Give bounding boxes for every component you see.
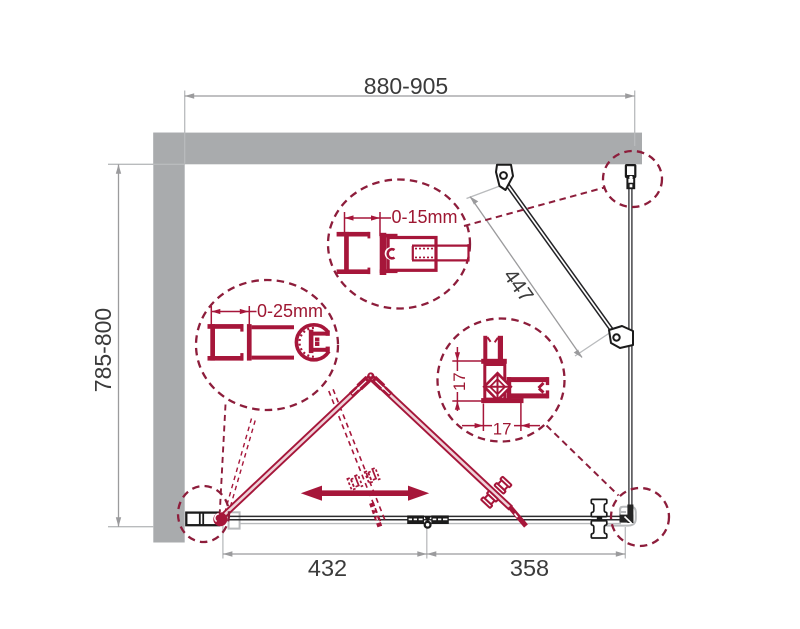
svg-text:0-15mm: 0-15mm bbox=[392, 207, 458, 227]
svg-text:0-25mm: 0-25mm bbox=[257, 301, 323, 321]
svg-text:880-905: 880-905 bbox=[364, 73, 448, 99]
svg-text:358: 358 bbox=[510, 555, 549, 581]
svg-text:432: 432 bbox=[308, 555, 347, 581]
svg-text:17: 17 bbox=[450, 372, 469, 391]
svg-text:785-800: 785-800 bbox=[90, 308, 116, 392]
svg-text:17: 17 bbox=[493, 419, 512, 438]
